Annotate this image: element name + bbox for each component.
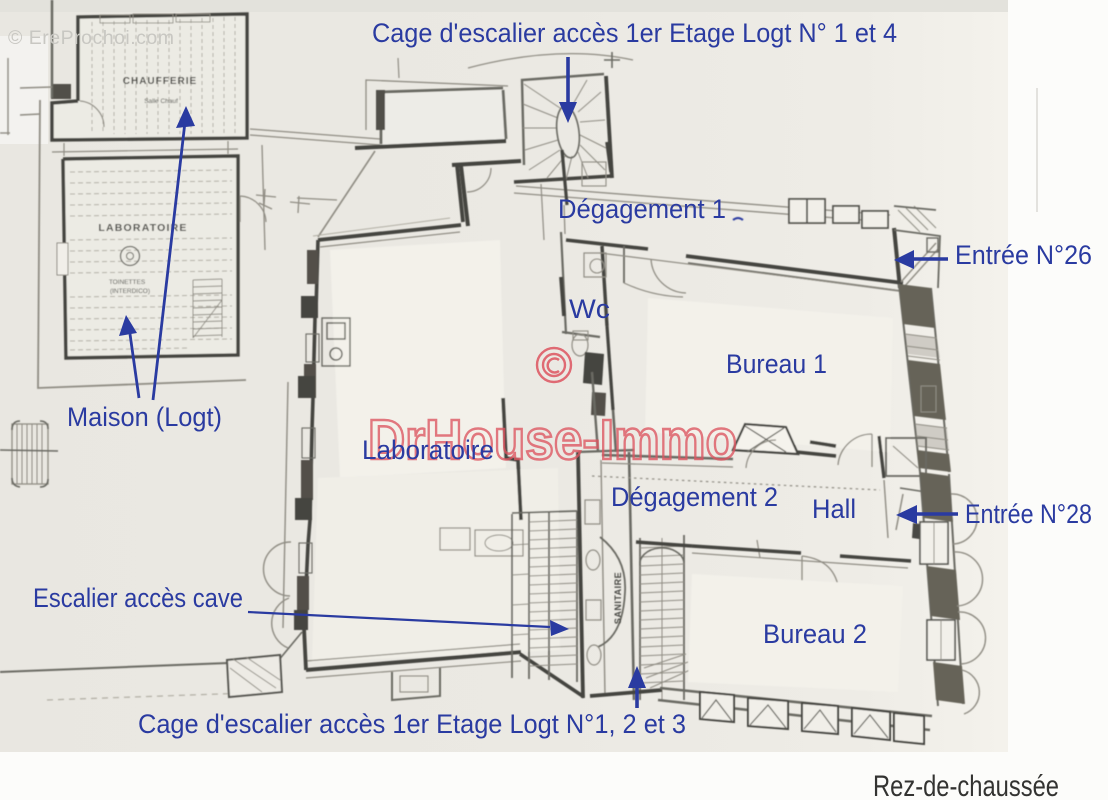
svg-text:© EreProchoi.com: © EreProchoi.com (8, 27, 175, 49)
svg-text:Cage d'escalier accès 1er Etag: Cage d'escalier accès 1er Etage Logt N°1… (138, 709, 686, 739)
svg-text:Entrée N°28: Entrée N°28 (965, 499, 1092, 529)
svg-text:Cage d'escalier accès 1er Etag: Cage d'escalier accès 1er Etage Logt N° … (372, 18, 897, 48)
svg-text:Entrée N°26: Entrée N°26 (955, 240, 1092, 270)
svg-text:TOINETTES: TOINETTES (109, 279, 146, 286)
svg-text:(INTERDICO): (INTERDICO) (110, 288, 150, 295)
svg-text:Hall: Hall (812, 494, 856, 524)
svg-text:Bureau 1: Bureau 1 (726, 349, 827, 379)
svg-text:Dégagement 2: Dégagement 2 (611, 482, 778, 512)
svg-text:Wc: Wc (569, 294, 610, 324)
svg-text:SANITAIRE: SANITAIRE (613, 572, 623, 624)
svg-text:Salle Chauf: Salle Chauf (144, 98, 178, 105)
svg-text:Bureau 2: Bureau 2 (763, 619, 867, 649)
svg-text:Escalier accès cave: Escalier accès cave (33, 583, 243, 613)
svg-text:Maison (Logt): Maison (Logt) (67, 402, 222, 432)
svg-text:CHAUFFERIE: CHAUFFERIE (123, 76, 197, 87)
svg-text:Rez-de-chaussée: Rez-de-chaussée (873, 770, 1059, 800)
svg-text:Dégagement 1: Dégagement 1 (558, 194, 726, 224)
svg-text:Laboratoire: Laboratoire (362, 435, 494, 465)
